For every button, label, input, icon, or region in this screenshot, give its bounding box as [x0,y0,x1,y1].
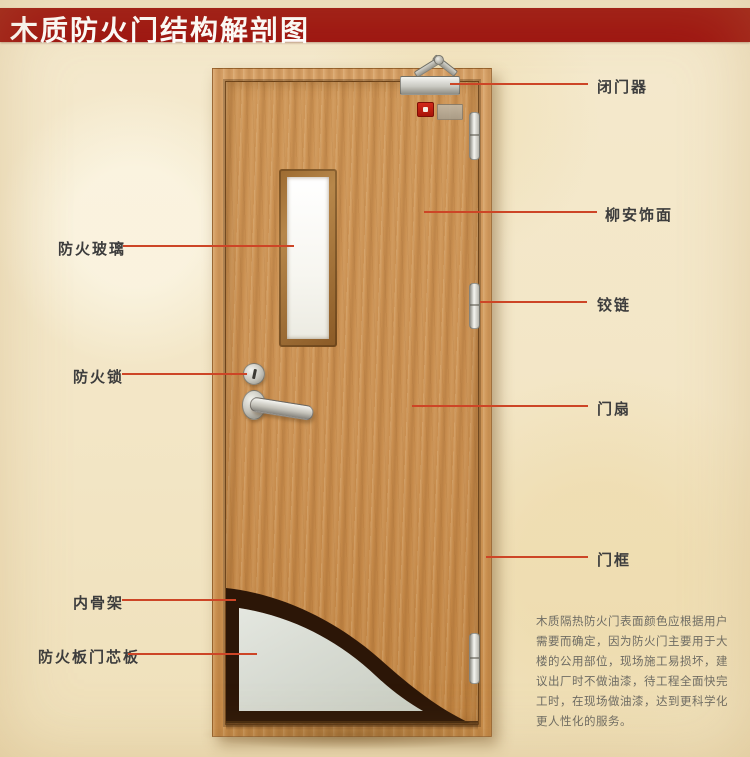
callout-label-door-leaf: 门扇 [597,398,631,419]
alarm-indicator [417,102,434,117]
name-plate [437,104,463,120]
page-title: 木质防火门结构解剖图 [10,9,310,49]
description-line: 更人性化的服务。 [536,712,736,732]
callout-line-door-frame [486,556,588,558]
floor-shadow [200,728,500,750]
fire-glass-pane [287,177,329,339]
title-banner: 木质防火门结构解剖图 [0,8,750,42]
callout-label-fire-glass: 防火玻璃 [58,238,126,259]
description-line: 工时，在现场做油漆，达到更科学化 [536,692,736,712]
callout-line-lauan-veneer [424,211,597,213]
keyhole [252,369,257,379]
callout-label-lauan-veneer: 柳安饰面 [605,204,673,225]
description-line: 楼的公用部位，现场施工易损坏，建 [536,652,736,672]
hinge-bottom [469,633,480,684]
glass-window-frame [279,169,337,347]
description-line: 议出厂时不做油漆，待工程全面快完 [536,672,736,692]
callout-label-door-frame: 门框 [597,549,631,570]
fire-door-diagram: 木质防火门结构解剖图 [0,0,750,757]
callout-label-hinge: 铰链 [597,294,631,315]
callout-label-fire-lock: 防火锁 [73,366,124,387]
callout-line-door-closer [450,83,588,85]
door-closer-body [400,76,460,95]
description-line: 木质隔热防火门表面颜色应根据用户 [536,612,736,632]
callout-line-door-leaf [412,405,588,407]
callout-line-inner-skeleton [122,599,236,601]
callout-label-door-closer: 闭门器 [597,76,648,97]
callout-line-fire-glass [123,245,294,247]
description-text: 木质隔热防火门表面颜色应根据用户 需要而确定，因为防火门主要用于大 楼的公用部位… [536,612,736,732]
callout-label-fire-board-core: 防火板门芯板 [38,646,140,667]
hinge-middle [469,283,480,329]
hinge-top [469,112,480,160]
cutaway-section [226,582,476,723]
description-line: 需要而确定，因为防火门主要用于大 [536,632,736,652]
callout-line-hinge [480,301,587,303]
callout-label-inner-skeleton: 内骨架 [73,592,124,613]
callout-line-fire-lock [122,373,247,375]
door-closer-pivot [434,55,444,65]
core-panel-shading [239,608,423,711]
callout-line-fire-board-core [128,653,257,655]
